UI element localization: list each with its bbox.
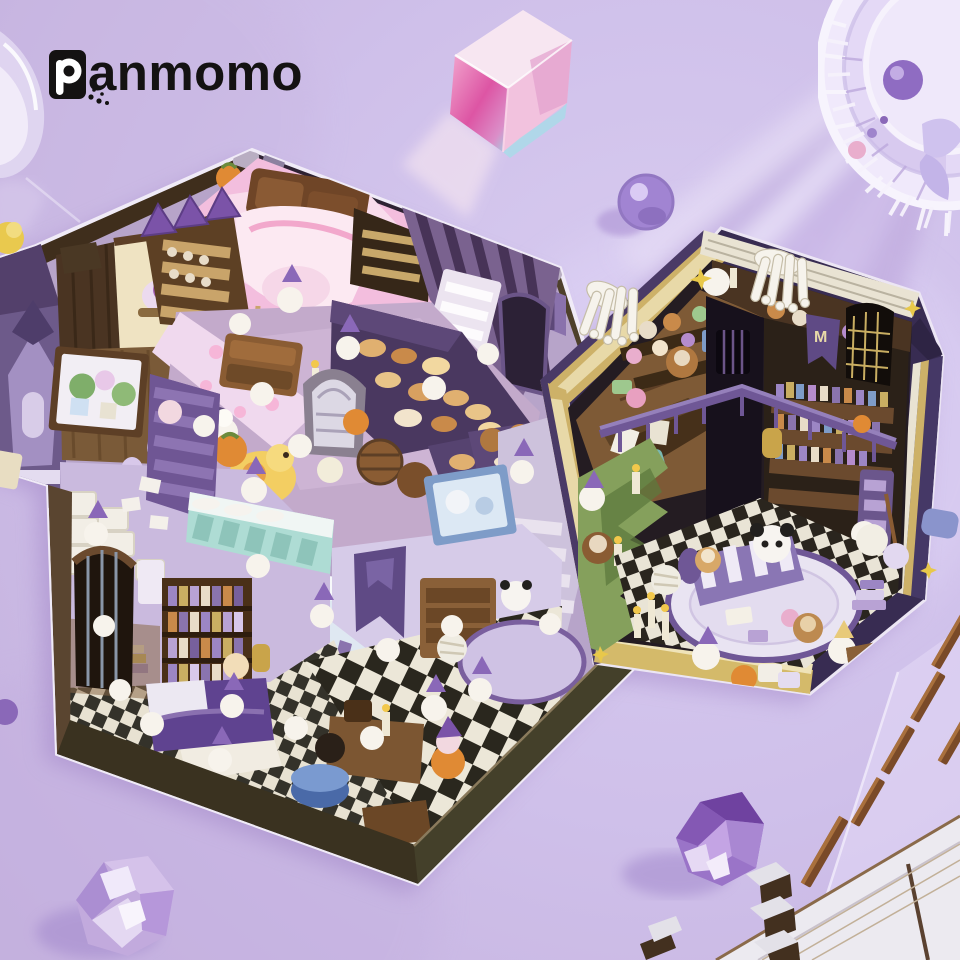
svg-text:anmomo: anmomo <box>88 44 303 101</box>
svg-text:M: M <box>814 329 827 346</box>
